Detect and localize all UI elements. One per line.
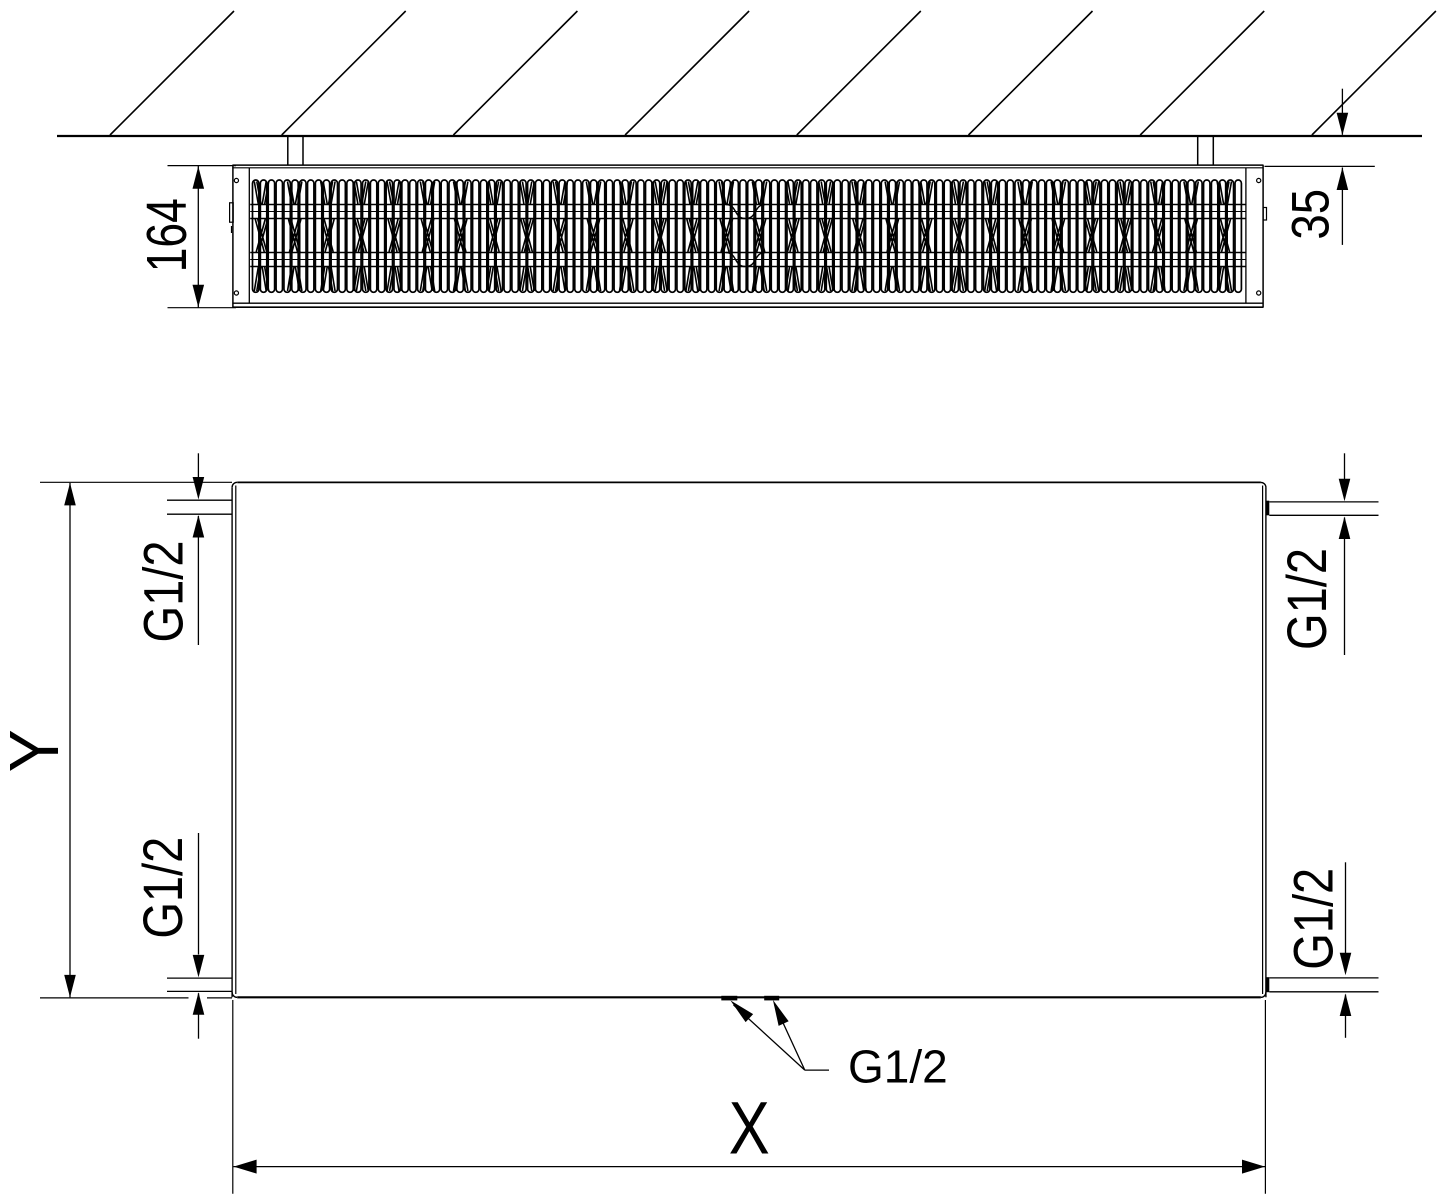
svg-text:G1/2: G1/2 [1275, 548, 1338, 650]
svg-text:G1/2: G1/2 [848, 1040, 948, 1092]
svg-text:X: X [729, 1087, 770, 1170]
svg-text:G1/2: G1/2 [131, 837, 194, 939]
svg-text:164: 164 [135, 198, 199, 272]
svg-text:G1/2: G1/2 [1282, 868, 1345, 970]
svg-text:G1/2: G1/2 [132, 541, 195, 643]
svg-text:35: 35 [1281, 189, 1340, 240]
svg-text:Y: Y [0, 729, 74, 772]
